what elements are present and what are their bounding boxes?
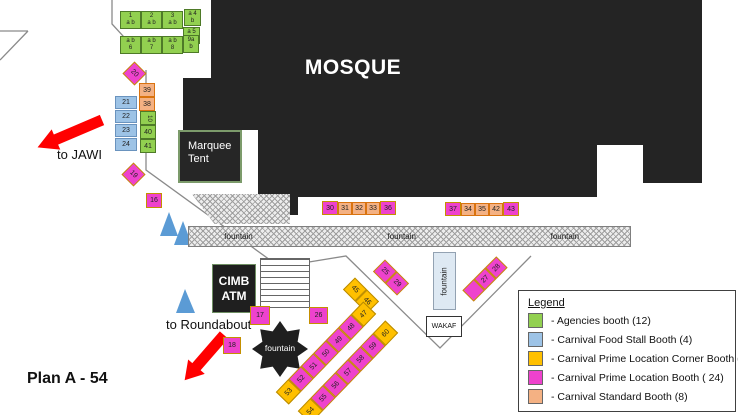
cimb-atm-line1: CIMB	[219, 274, 250, 289]
booth-32: 32	[352, 202, 366, 215]
tree-triangle	[176, 289, 195, 313]
fountain-pool: fountainfountainfountain	[188, 226, 631, 247]
to-roundabout-label: to Roundabout	[166, 317, 251, 332]
legend-swatch	[528, 370, 543, 385]
fountain-vertical-label: fountain	[440, 267, 449, 295]
booth-19: 19	[121, 162, 145, 186]
legend-item: - Carnival Food Stall Booth (4)	[528, 332, 735, 347]
fountain-bar-label: fountain	[224, 232, 252, 241]
booth-18: 18	[223, 337, 241, 354]
booth-20: 20	[122, 61, 146, 85]
booth-43: 43	[503, 202, 519, 216]
legend-item-label: - Carnival Standard Booth (8)	[551, 391, 688, 403]
booth-9: 9ab	[183, 35, 199, 53]
legend-item: - Carnival Prime Location Booth ( 24)	[528, 370, 735, 385]
booth-26: 26	[309, 307, 328, 324]
legend-swatch	[528, 313, 543, 328]
legend-item-label: - Agencies booth (12)	[551, 315, 651, 327]
fountain-bar-label: fountain	[551, 232, 579, 241]
booth-23: 23	[115, 124, 137, 137]
legend-swatch	[528, 351, 543, 366]
booth-6: a b6	[120, 36, 141, 54]
booth-33: 33	[366, 202, 380, 215]
marquee-tent: Marquee Tent	[178, 130, 242, 183]
booth-34: 34	[461, 203, 475, 216]
booth-36: 36	[380, 201, 396, 215]
mosque-label: MOSQUE	[303, 56, 403, 80]
booth-22: 22	[115, 110, 137, 123]
booth-40: 40	[140, 125, 156, 139]
booth-41: 41	[140, 139, 156, 153]
fountain-bar-label: fountain	[387, 232, 415, 241]
plan-title: Plan A - 54	[27, 370, 108, 388]
booth-24: 24	[115, 138, 137, 151]
carnival-site-plan: MOSQUE Marquee Tent CIMB ATM fountainfou…	[0, 0, 738, 415]
booth-19: 19	[121, 162, 145, 186]
booth-21: 21	[115, 96, 137, 109]
legend-item-label: - Carnival Prime Location Corner Booth (…	[551, 353, 738, 365]
booth-35: 35	[475, 203, 489, 216]
legend-item: - Agencies booth (12)	[528, 313, 735, 328]
booth-38: 38	[139, 97, 155, 111]
legend-items: - Agencies booth (12)- Carnival Food Sta…	[528, 313, 735, 404]
booth-3: 3a b	[162, 11, 183, 29]
legend-swatch	[528, 389, 543, 404]
legend-item: - Carnival Prime Location Corner Booth (…	[528, 351, 735, 366]
legend: Legend - Agencies booth (12)- Carnival F…	[518, 290, 736, 412]
booth-10: 10	[140, 111, 156, 125]
wakaf-hut: WAKAF	[426, 316, 462, 337]
fountain-star-label: fountain	[251, 343, 309, 353]
stairs	[260, 258, 310, 308]
booth-30: 30	[322, 201, 338, 215]
booth-37: 37	[445, 202, 461, 216]
booth-17: 17	[250, 306, 270, 325]
legend-item-label: - Carnival Prime Location Booth ( 24)	[551, 372, 724, 384]
booth-2: 2a b	[141, 11, 162, 29]
booths-25-29: 2529	[373, 259, 409, 295]
to-jawi-label: to JAWI	[57, 147, 102, 162]
booth-39: 39	[139, 83, 155, 97]
booth-42: 42	[489, 203, 503, 216]
booth-31: 31	[338, 202, 352, 215]
legend-title: Legend	[528, 297, 735, 309]
booth-16: 16	[146, 193, 162, 208]
booth-1: 1a b	[120, 11, 141, 29]
legend-item-label: - Carnival Food Stall Booth (4)	[551, 334, 692, 346]
booth-4: a 4b	[184, 9, 201, 26]
tree-triangle	[160, 212, 178, 236]
booth-7: a b7	[141, 36, 162, 54]
hatched-walkway	[192, 194, 290, 224]
cimb-atm-line2: ATM	[221, 289, 246, 304]
legend-swatch	[528, 332, 543, 347]
legend-item: - Carnival Standard Booth (8)	[528, 389, 735, 404]
booth-8: a b8	[162, 36, 183, 54]
booth-20: 20	[122, 61, 146, 85]
mosque-building	[183, 0, 702, 215]
fountain-vertical: fountain	[433, 252, 456, 310]
booths-27-28: 2728	[462, 256, 507, 301]
